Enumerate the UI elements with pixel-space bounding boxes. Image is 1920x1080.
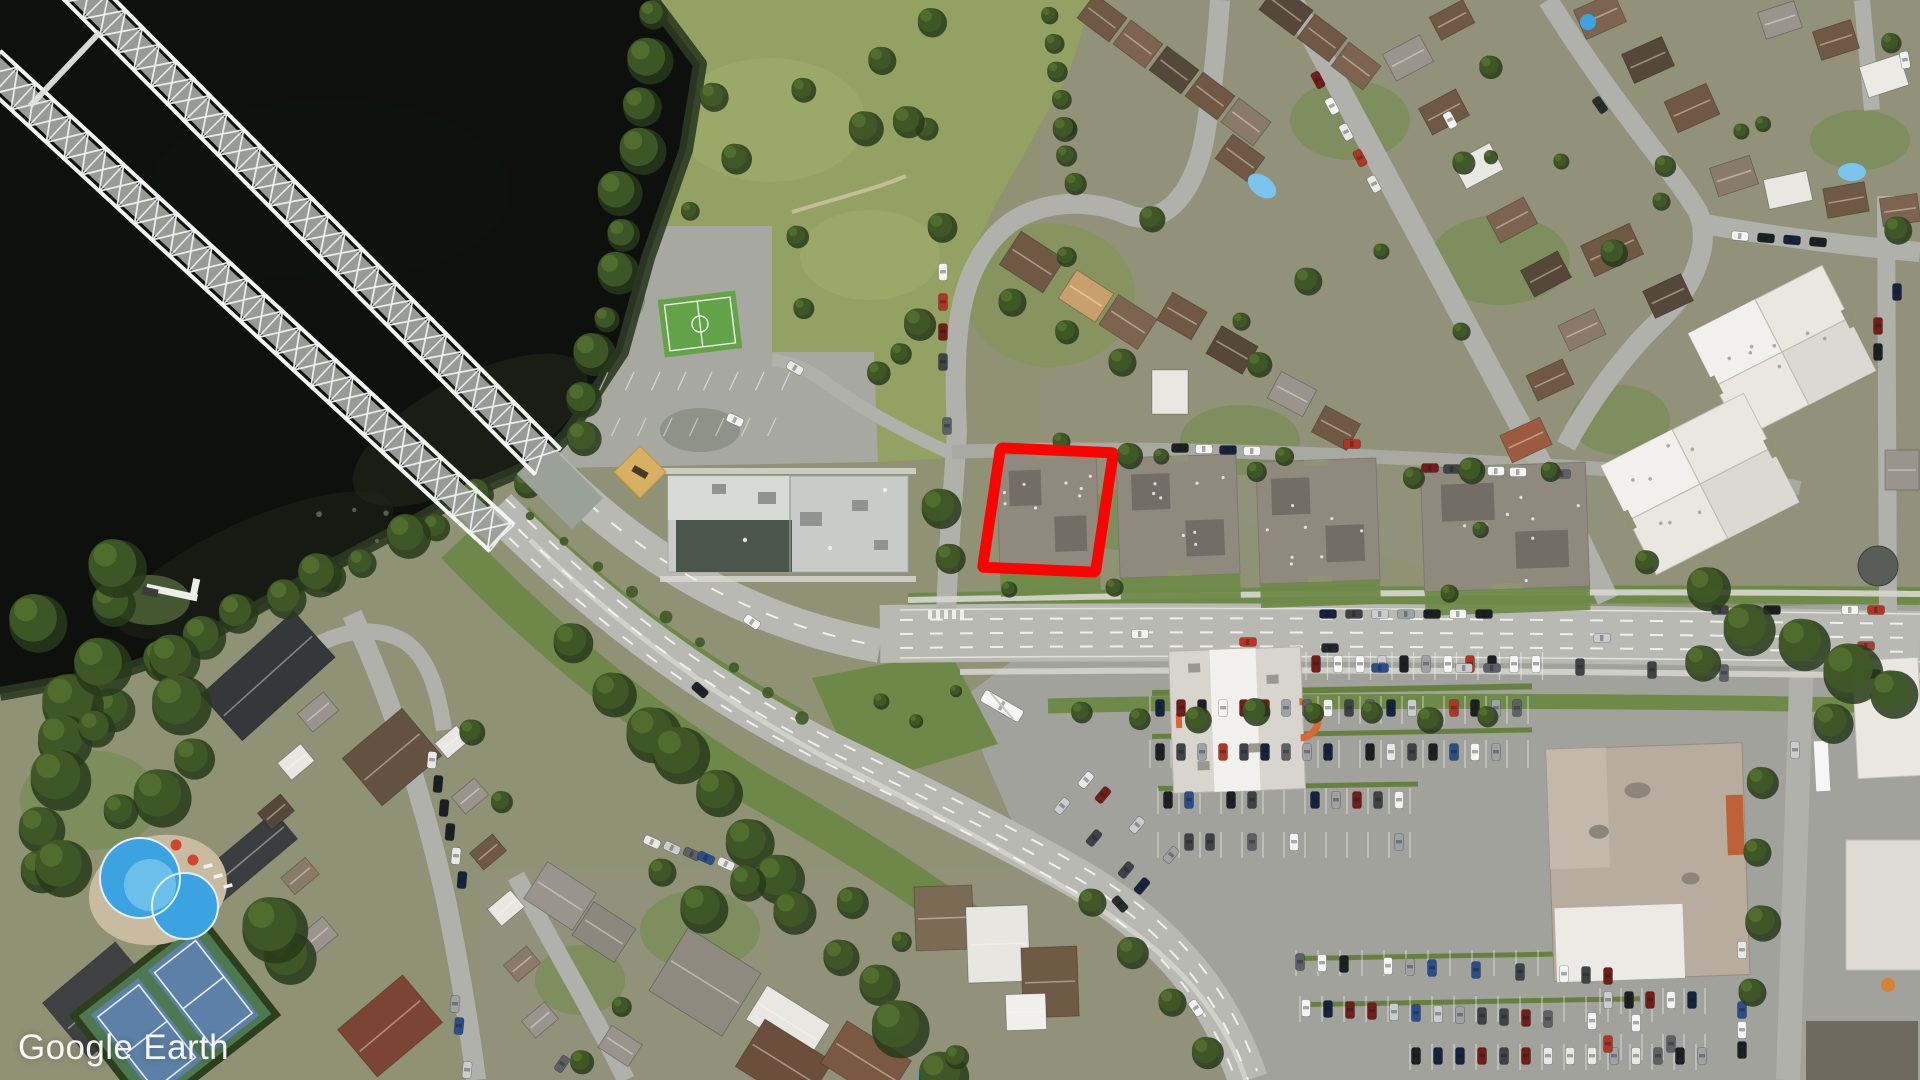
car xyxy=(1667,992,1676,1009)
car xyxy=(1522,1048,1531,1065)
car xyxy=(1738,1022,1747,1039)
car xyxy=(1408,744,1417,761)
car xyxy=(1240,638,1257,647)
car xyxy=(1783,235,1801,245)
car xyxy=(1456,1007,1465,1024)
car xyxy=(1588,1048,1597,1065)
car xyxy=(1356,656,1365,673)
car xyxy=(1646,992,1655,1009)
car xyxy=(1450,700,1459,717)
apartment-blocks-row xyxy=(996,451,1590,616)
car xyxy=(1372,610,1389,619)
car xyxy=(1248,834,1257,851)
car xyxy=(1185,834,1194,851)
car xyxy=(1566,1048,1575,1065)
car xyxy=(1172,444,1189,453)
car xyxy=(457,871,467,889)
soccer-field xyxy=(658,290,742,357)
car xyxy=(1738,942,1747,959)
car xyxy=(1177,744,1186,761)
car xyxy=(1340,956,1349,973)
car xyxy=(1219,700,1228,717)
car xyxy=(1219,744,1228,761)
google-earth-watermark: Google Earth xyxy=(18,1028,229,1068)
google-earth-map-canvas[interactable]: Google Earth xyxy=(0,0,1920,1080)
car xyxy=(1757,233,1775,243)
car xyxy=(1156,700,1165,717)
car xyxy=(1738,1042,1747,1059)
car xyxy=(1177,700,1186,717)
car xyxy=(1400,656,1409,673)
car xyxy=(1398,610,1415,619)
car xyxy=(1311,792,1320,809)
car xyxy=(1516,964,1525,981)
car xyxy=(1303,744,1312,761)
car xyxy=(1450,744,1459,761)
car xyxy=(1318,955,1327,972)
car xyxy=(439,799,449,817)
car xyxy=(1500,1048,1509,1065)
car xyxy=(1676,1048,1685,1065)
car xyxy=(1471,744,1480,761)
car xyxy=(943,418,952,435)
car xyxy=(1346,610,1363,619)
car xyxy=(1604,992,1613,1009)
car xyxy=(1384,958,1393,975)
car xyxy=(1374,792,1383,809)
car xyxy=(1324,700,1333,717)
car xyxy=(1164,792,1173,809)
car xyxy=(1196,445,1213,454)
apartment-block xyxy=(1256,458,1381,608)
house xyxy=(914,885,974,951)
car xyxy=(1185,792,1194,809)
car xyxy=(1842,606,1859,615)
car xyxy=(462,1061,472,1079)
car xyxy=(1648,662,1657,679)
apartment-block xyxy=(1116,454,1241,602)
car xyxy=(939,264,948,281)
car xyxy=(1302,1000,1311,1017)
car xyxy=(1604,968,1613,985)
car xyxy=(445,823,455,841)
car xyxy=(939,354,948,371)
car xyxy=(1472,962,1481,979)
car xyxy=(1424,610,1441,619)
car xyxy=(1478,1048,1487,1065)
car xyxy=(1874,344,1883,361)
car xyxy=(1513,700,1522,717)
car xyxy=(1220,446,1237,455)
car xyxy=(1544,1011,1553,1028)
car xyxy=(1296,954,1305,971)
car xyxy=(454,1017,464,1035)
car xyxy=(1604,1036,1613,1053)
car xyxy=(1456,664,1473,673)
car xyxy=(1412,1048,1421,1065)
car xyxy=(433,775,443,793)
car xyxy=(1625,992,1634,1009)
car xyxy=(1434,1048,1443,1065)
car xyxy=(1874,318,1883,335)
car xyxy=(1688,992,1697,1009)
aerial-imagery xyxy=(0,0,1920,1080)
car xyxy=(1893,284,1902,301)
car xyxy=(1395,792,1404,809)
car xyxy=(1372,664,1389,673)
car xyxy=(1408,700,1417,717)
car xyxy=(1345,700,1354,717)
car xyxy=(1332,792,1341,809)
car xyxy=(1412,1005,1421,1022)
car xyxy=(1476,610,1493,619)
car xyxy=(1444,656,1453,673)
car xyxy=(1282,744,1291,761)
car xyxy=(1132,630,1149,639)
car xyxy=(1582,967,1591,984)
car xyxy=(1698,1048,1707,1065)
car xyxy=(1198,744,1207,761)
car xyxy=(1422,656,1431,673)
car xyxy=(1244,447,1261,456)
car xyxy=(1322,644,1339,653)
car xyxy=(1334,656,1343,673)
car xyxy=(1429,744,1438,761)
school-building xyxy=(668,476,908,572)
car xyxy=(1510,656,1519,673)
car xyxy=(1387,700,1396,717)
car xyxy=(1532,656,1541,673)
car xyxy=(1344,440,1361,449)
plaza-store xyxy=(1546,743,1750,983)
car xyxy=(1346,1002,1355,1019)
car xyxy=(1667,1036,1676,1053)
house xyxy=(966,905,1031,983)
car xyxy=(450,995,460,1013)
car xyxy=(1324,744,1333,761)
car xyxy=(1500,1009,1509,1026)
house xyxy=(1005,993,1046,1030)
car xyxy=(1488,467,1505,476)
car xyxy=(1261,744,1270,761)
car xyxy=(427,751,437,769)
car xyxy=(1594,634,1611,643)
car xyxy=(1731,231,1749,241)
car xyxy=(1368,1003,1377,1020)
car xyxy=(1560,966,1569,983)
car xyxy=(939,324,948,341)
car xyxy=(1324,1001,1333,1018)
car xyxy=(1868,606,1885,615)
car xyxy=(1654,1048,1663,1065)
car xyxy=(1492,744,1501,761)
car xyxy=(1390,1004,1399,1021)
car xyxy=(1366,744,1375,761)
car xyxy=(1290,834,1299,851)
car xyxy=(1478,1008,1487,1025)
car xyxy=(1510,468,1527,477)
car xyxy=(1434,1006,1443,1023)
car xyxy=(1406,959,1415,976)
car xyxy=(1387,744,1396,761)
car xyxy=(1456,1048,1465,1065)
car xyxy=(451,847,461,865)
car xyxy=(1522,1010,1531,1027)
car xyxy=(1544,1048,1553,1065)
car xyxy=(1791,742,1800,759)
car xyxy=(1484,664,1501,673)
car xyxy=(1248,792,1257,809)
car xyxy=(1809,237,1827,247)
car xyxy=(1353,792,1362,809)
house xyxy=(1152,370,1188,414)
car xyxy=(1428,960,1437,977)
car xyxy=(1450,610,1467,619)
house xyxy=(1885,450,1919,490)
car xyxy=(1282,700,1291,717)
car xyxy=(1422,464,1439,473)
car xyxy=(1588,1013,1597,1030)
car xyxy=(939,294,948,311)
car xyxy=(1206,834,1215,851)
car xyxy=(1240,744,1249,761)
car xyxy=(1444,465,1461,474)
car xyxy=(1576,659,1585,676)
car xyxy=(1156,744,1165,761)
car xyxy=(1632,1048,1641,1065)
car xyxy=(1227,792,1236,809)
car xyxy=(1395,834,1404,851)
car xyxy=(1312,656,1321,673)
car xyxy=(1320,610,1337,619)
car xyxy=(1632,1015,1641,1032)
